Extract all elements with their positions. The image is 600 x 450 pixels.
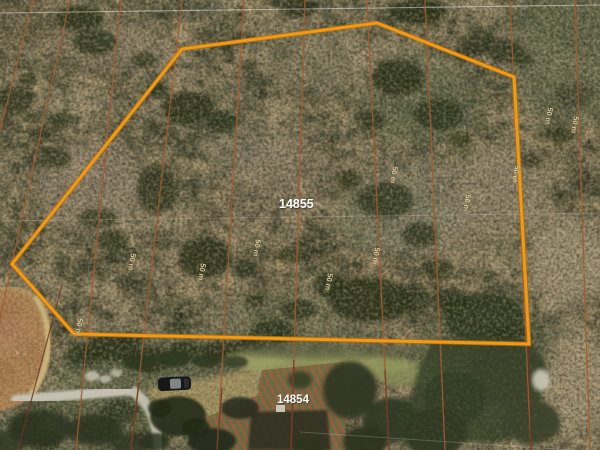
svg-text:14854: 14854: [277, 394, 310, 406]
svg-text:14855: 14855: [279, 197, 314, 211]
